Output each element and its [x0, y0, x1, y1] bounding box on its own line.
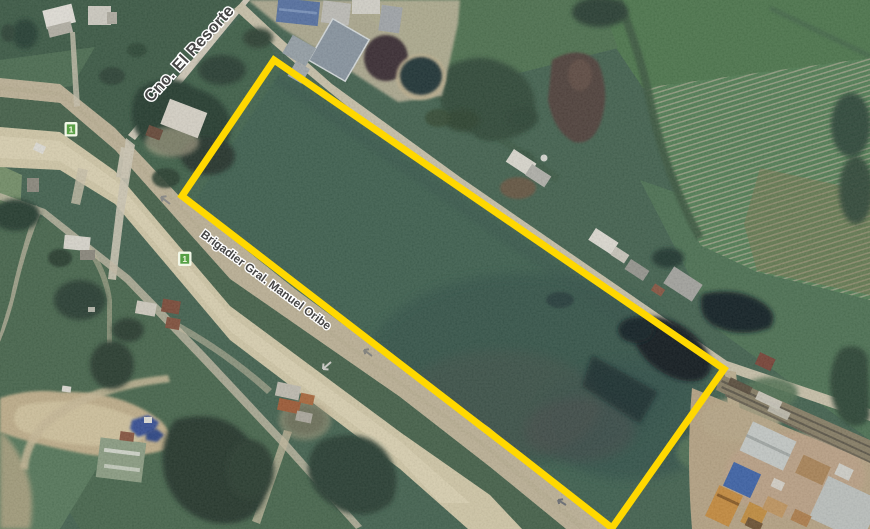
svg-text:1: 1 — [69, 125, 74, 135]
svg-text:1: 1 — [182, 254, 187, 264]
